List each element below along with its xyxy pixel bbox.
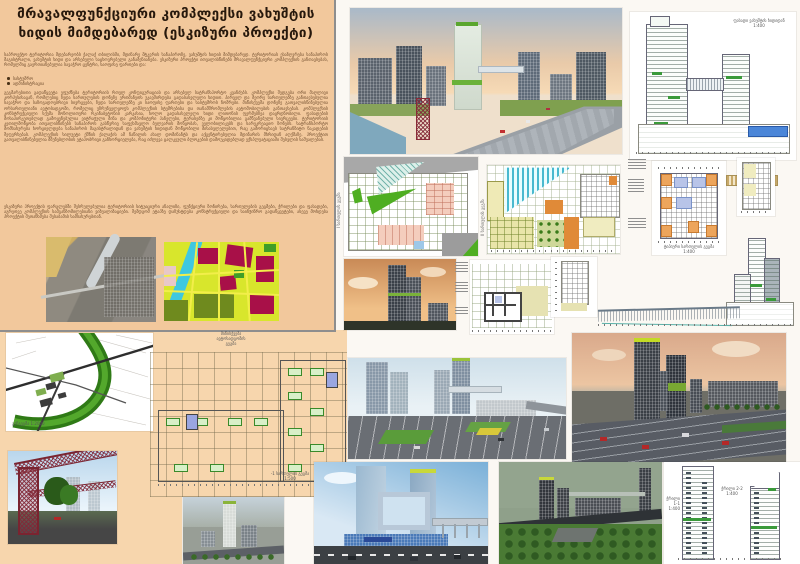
render-tower <box>223 503 236 547</box>
render-car <box>348 556 356 560</box>
plan-cell-orange <box>688 221 699 233</box>
render-tower-small <box>690 379 702 413</box>
render-street-day <box>348 358 566 459</box>
render-link-block <box>660 371 668 411</box>
plan-dim-col <box>555 261 557 311</box>
plan-pool-cell <box>414 241 424 249</box>
parking-elevator-core <box>326 372 338 388</box>
parking-car-stall <box>310 444 324 452</box>
plan-cell-blue <box>676 197 692 209</box>
render-green-band <box>388 293 421 296</box>
render-car <box>498 438 504 441</box>
elevation-green-cell <box>668 96 680 99</box>
render-car <box>500 130 505 133</box>
satellite-map-image <box>46 237 156 322</box>
plan-rooms-khaki <box>490 217 534 249</box>
section-tower-a-dark-stripe <box>686 470 691 554</box>
render-aerial-sunset <box>572 333 786 462</box>
render-lawn <box>378 430 434 444</box>
plan-cell-orange <box>661 225 672 237</box>
render-block <box>241 525 257 547</box>
truss-tower-left <box>18 467 39 535</box>
render-cloud <box>348 277 378 289</box>
render-plaza <box>552 528 598 542</box>
legend-lines <box>455 262 468 272</box>
elevation-ground-line <box>636 152 790 154</box>
render-sky-bridge <box>448 386 502 393</box>
elevation-green-cell <box>652 72 662 75</box>
plan-cell-blue <box>674 177 688 188</box>
plan-core-orange <box>564 217 579 249</box>
legend-lines <box>455 306 468 314</box>
section-green-cell <box>750 284 762 287</box>
render-car <box>410 557 418 561</box>
render-link-beam <box>569 492 645 496</box>
render-car <box>546 108 550 110</box>
elevation-caption-scale: 1:400 <box>726 23 792 28</box>
render-car <box>414 446 420 449</box>
plan-rooms-khaki <box>487 181 504 221</box>
parking-car-stall <box>288 392 302 400</box>
render-signage <box>364 537 392 542</box>
render-aerial-green <box>499 462 662 564</box>
render-tower-sunset <box>344 259 456 330</box>
render-truss-structure <box>8 451 117 544</box>
render-green-cap <box>452 358 470 361</box>
section-tower-b-dark-stripe <box>754 490 759 554</box>
parking-caption-line: გეგმა <box>198 341 264 346</box>
bullet-list: სასტუმრო ადმინისტრაცია <box>6 76 326 86</box>
section-tower-b-roof-slope <box>750 472 780 489</box>
plan-cell-orange <box>706 174 717 186</box>
section-green-band <box>683 518 711 521</box>
plan-cell-blue <box>692 177 706 188</box>
section1-caption: ჭრილი 1-1 1:400 <box>665 496 680 512</box>
text-panel: მრავალფუნქციური კომპლექსი ვახუშტის ხიდის… <box>0 0 336 332</box>
render-low-block <box>428 303 448 323</box>
parking-car-stall <box>174 464 188 472</box>
render-aerial-small <box>183 497 284 564</box>
section-green-roof-cell <box>768 488 776 491</box>
section-green-cell <box>766 298 776 301</box>
section-ground-line <box>598 324 794 326</box>
render-tower-green-cap <box>456 22 478 26</box>
plan-cell-orange <box>661 174 672 186</box>
elevation-bridge-link <box>686 78 724 91</box>
second-paragraph: ესკიზური პროექტის ფარგლებში შესრულებულია… <box>4 204 328 220</box>
render-sky-bridge <box>478 66 524 73</box>
render-cloud <box>420 267 446 277</box>
site-plan-caption: გენგეგმა 1:2000 <box>12 421 72 426</box>
zoning-map-image <box>164 242 279 321</box>
section-green-band <box>751 526 777 529</box>
render-cloud <box>712 341 760 357</box>
render-cloud <box>592 349 626 361</box>
render-main-bridge-view <box>350 8 622 154</box>
render-block <box>201 531 215 547</box>
plan-terrace-trees <box>537 220 564 247</box>
bullet-item: ადმინისტრაცია <box>6 81 326 86</box>
plan-wall <box>486 304 516 306</box>
render-car <box>642 445 649 449</box>
parking-car-stall <box>310 368 324 376</box>
truss-tree <box>60 485 78 505</box>
render-building <box>358 58 392 106</box>
site-road <box>6 345 153 391</box>
render-tower-cap-yellow <box>539 477 554 480</box>
elevation-green-cell <box>726 76 742 79</box>
render-ground <box>344 321 456 330</box>
parking-car-stall <box>288 368 302 376</box>
section2-caption: ჭრილი 2-2 1:400 <box>718 486 746 496</box>
plan-annex-orange-cell <box>609 176 617 185</box>
render-truss-tower <box>416 98 430 140</box>
page-title: მრავალფუნქციური კომპლექსი ვახუშტის ხიდის… <box>2 5 330 43</box>
title-line-2: ხიდის მიმდებარედ (ესკიზური პროექტი) <box>2 24 330 43</box>
zoning-block <box>250 294 274 314</box>
plan-mid-level <box>470 260 554 334</box>
section2-caption-scale: 1:400 <box>718 491 746 496</box>
render-tower-cap-green <box>634 338 660 342</box>
plan-core-room <box>744 184 756 196</box>
plan2-side-label: II სართულის გეგმა <box>480 176 485 236</box>
parking-elevator-core <box>186 414 198 430</box>
render-overpass-piers <box>442 524 482 538</box>
plan-annex-khaki <box>583 217 615 237</box>
bullet-icon <box>7 82 10 85</box>
parking-car-stall <box>254 418 268 426</box>
legend-lines <box>628 177 644 192</box>
render-glass-tower <box>366 362 388 414</box>
parking-car-stall <box>288 428 302 436</box>
render-tower-dark <box>557 488 569 520</box>
render-car <box>722 441 729 445</box>
bullet-label: ადმინისტრაცია <box>13 81 44 86</box>
tower-sections-drawing: ჭრილი 1-1 1:400 ჭრილი 2-2 1:400 <box>664 462 800 564</box>
site-plan-svg <box>6 333 153 431</box>
parking-car-stall <box>310 408 324 416</box>
plan-core-small <box>737 158 775 216</box>
plan-first-floor <box>344 157 478 256</box>
render-road-dashes <box>314 554 488 556</box>
render-tower-dark <box>539 480 554 520</box>
render-car <box>454 555 461 559</box>
truss-car <box>54 517 61 520</box>
zoning-road <box>218 242 220 321</box>
elevation-main-drawing: ფასადი ვახუშტის ხიდიდან 1:400 <box>630 12 796 160</box>
presentation-board: მრავალფუნქციური კომპლექსი ვახუშტის ხიდის… <box>0 0 800 564</box>
render-flower-patch <box>476 428 502 435</box>
section1-caption-text: ჭრილი 1-1 <box>665 496 680 506</box>
render-tower-cap-yellow <box>410 469 436 473</box>
parking-caption: მიწისქვეშა ავტოსადგომის გეგმა <box>198 331 264 347</box>
plan1-side-label: I სართულის გეგმა <box>336 168 341 228</box>
elevation-pool <box>748 126 788 137</box>
bullet-icon <box>7 77 10 80</box>
render-cloud <box>324 472 360 484</box>
section1-caption-scale: 1:400 <box>665 506 680 511</box>
intro-paragraph: საპროექტო ტერიტორია მდებარეობს ქალაქ თბი… <box>4 52 328 68</box>
title-line-1: მრავალფუნქციური კომპლექსი ვახუშტის <box>2 5 330 24</box>
plan-rooms-salmon <box>426 183 454 215</box>
plan-core-room <box>744 164 756 178</box>
elevation-caption: ფასადი ვახუშტის ხიდიდან 1:400 <box>726 18 792 28</box>
render-portal-frame <box>378 492 430 530</box>
site-buildings <box>39 382 66 408</box>
plan-dim-row <box>491 250 615 252</box>
site-plan-drawing: გენგეგმა 1:2000 <box>6 333 153 431</box>
render-tower-far <box>639 468 651 512</box>
render-trees <box>189 553 279 561</box>
elevation-tower-cap <box>650 16 670 27</box>
render-glass-tower <box>390 372 408 414</box>
render-car <box>526 120 530 123</box>
plan-dim-row <box>741 211 771 213</box>
zoning-block <box>198 248 218 264</box>
section-base-line <box>678 558 782 560</box>
section-elevation-combo <box>598 238 794 334</box>
zoning-green-area <box>194 294 234 318</box>
parking-car-stall <box>228 418 242 426</box>
parking-car-stall <box>210 464 224 472</box>
render-tower-green-band <box>452 80 482 85</box>
render-water <box>350 112 406 154</box>
render-car <box>600 437 607 441</box>
plan-walled-rooms <box>484 292 522 322</box>
plan-khaki-band <box>561 303 587 311</box>
legend-lines <box>628 157 646 169</box>
plan-core-orange <box>545 200 563 214</box>
render-street-twin-towers <box>314 462 488 564</box>
satellite-blocks <box>104 257 154 317</box>
plan-core-mid <box>551 257 597 317</box>
plan-core-frame <box>561 261 589 305</box>
render-car <box>682 433 689 437</box>
legend-column-2 <box>455 262 469 328</box>
render-tower-cap <box>223 501 236 504</box>
legend-lines <box>455 282 468 292</box>
plan-cell-orange <box>706 225 717 237</box>
zoning-green-area <box>164 300 188 321</box>
plan-blue-cell <box>495 296 502 303</box>
satellite-sand-area <box>46 237 72 277</box>
render-car <box>544 428 549 431</box>
render-podium-glass <box>344 534 448 546</box>
plan-cell-orange <box>661 197 672 209</box>
render-building <box>396 46 422 106</box>
main-paragraph: გეგმარებითი გადაწყვეტა ეფუძნება ტერიტორი… <box>4 90 328 142</box>
plan-dim-row <box>472 330 552 332</box>
render-main-tower <box>634 341 660 423</box>
zoning-block <box>225 244 254 267</box>
render-tower-green-panels <box>666 383 686 391</box>
legend-lines <box>628 218 646 228</box>
render-tower-dark <box>406 277 421 323</box>
parking-car-stall <box>166 418 180 426</box>
zoning-park <box>264 244 276 252</box>
plan-dim-row <box>658 167 720 169</box>
